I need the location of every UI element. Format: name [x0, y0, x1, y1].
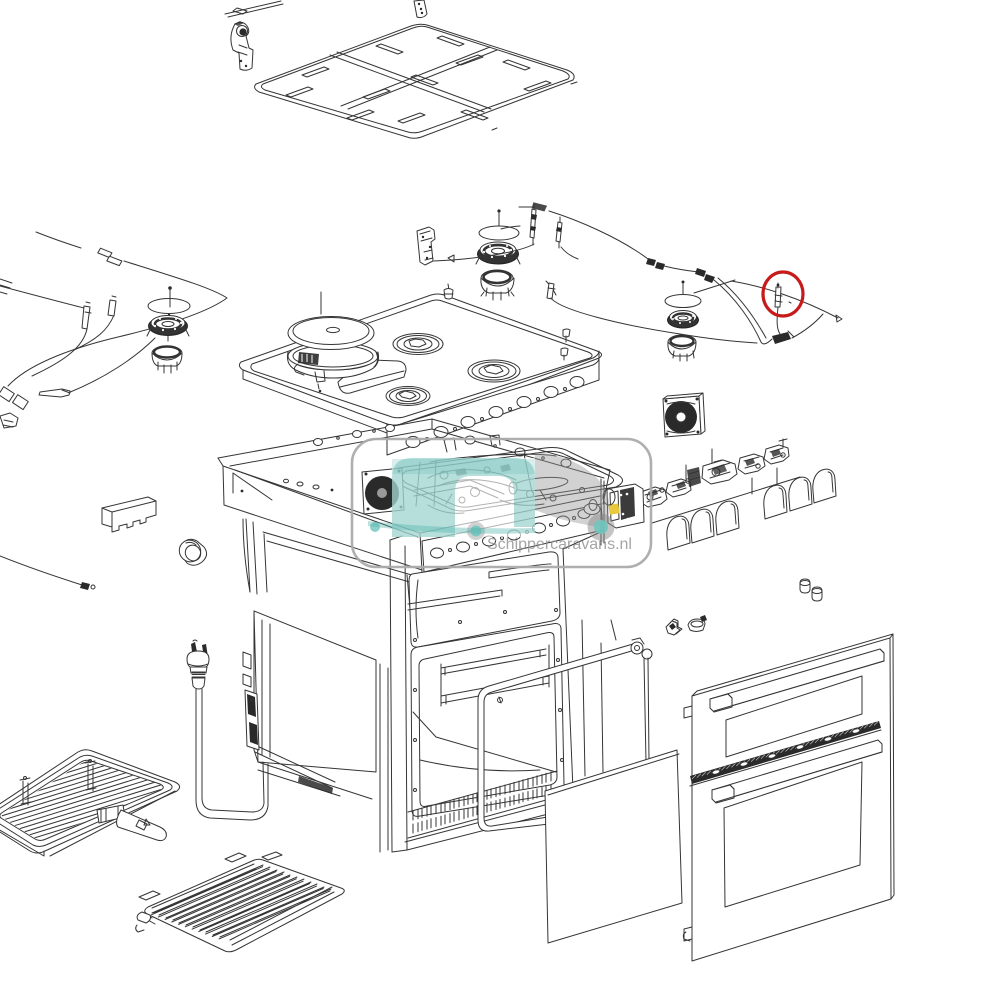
svg-text:Schippercaravans.nl: Schippercaravans.nl: [487, 536, 632, 553]
